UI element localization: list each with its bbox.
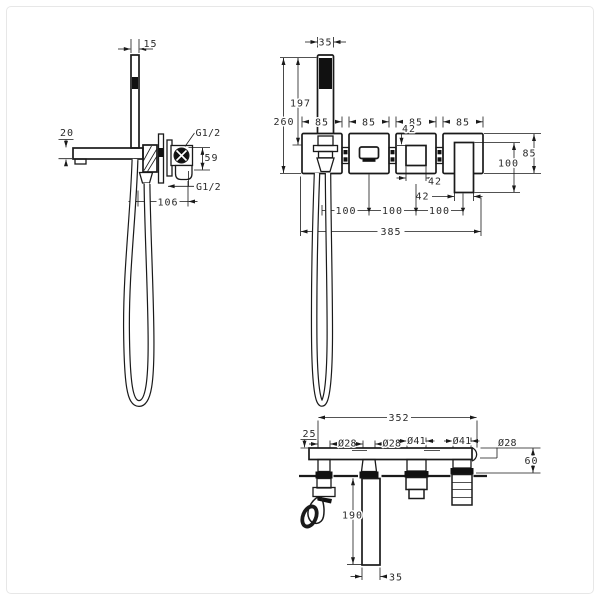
dim-spout-reach: 190 bbox=[342, 478, 363, 564]
dim-label: 35 bbox=[318, 38, 332, 49]
dim-label: 190 bbox=[342, 511, 363, 522]
valve-1-bottom bbox=[405, 460, 429, 499]
dim-plate1-width: 85 bbox=[302, 117, 342, 129]
valve-2-bottom bbox=[451, 460, 474, 506]
technical-drawing: 15 20 bbox=[0, 0, 600, 600]
dim-edge-offset: 25 bbox=[301, 429, 317, 448]
dim-hole3-diameter: Ø41 bbox=[398, 435, 435, 448]
dim-handshower-width: 35 bbox=[305, 37, 346, 49]
dim-label: Ø28 bbox=[498, 437, 517, 449]
dim-label: G1/2 bbox=[196, 128, 221, 139]
hand-shower-side bbox=[131, 55, 139, 148]
dim-label: Ø41 bbox=[407, 435, 426, 447]
shower-head-ring bbox=[300, 504, 320, 528]
dim-label: 197 bbox=[290, 99, 311, 110]
dim-label: 385 bbox=[380, 227, 401, 238]
inlet-connection-circle bbox=[174, 148, 189, 163]
plate-connector-1 bbox=[342, 148, 349, 164]
dim-label: G1/2 bbox=[196, 182, 221, 193]
dim-label: 25 bbox=[303, 429, 317, 440]
dim-label: 352 bbox=[388, 413, 409, 424]
dim-holder-bar-width: 15 bbox=[118, 39, 158, 53]
dim-plate4-width: 85 bbox=[443, 117, 483, 129]
dim-label: 85 bbox=[456, 118, 470, 129]
dim-label: 106 bbox=[157, 198, 178, 209]
plate-connector-2 bbox=[389, 148, 396, 164]
dim-hole5-diameter: Ø28 bbox=[480, 437, 517, 458]
plate-connector-3 bbox=[436, 148, 443, 164]
dim-spout-width: 35 bbox=[351, 568, 404, 584]
lever-handle-front bbox=[455, 143, 474, 193]
wall-bar-bottom bbox=[309, 448, 477, 461]
outlet-port-side bbox=[176, 166, 193, 180]
dim-label: 100 bbox=[335, 206, 356, 217]
dim-plate2-width: 85 bbox=[349, 117, 389, 129]
dim-wall-depth: 106 bbox=[129, 181, 198, 209]
dim-spout-height: 20 bbox=[59, 128, 75, 166]
shower-hook-bottom bbox=[300, 460, 335, 529]
dim-label: 42 bbox=[415, 192, 429, 203]
dim-label: 100 bbox=[498, 159, 519, 170]
dim-label: 20 bbox=[60, 128, 74, 139]
dim-label: 60 bbox=[524, 456, 538, 467]
hose-side bbox=[126, 159, 152, 404]
dim-handshower-length: 197 bbox=[290, 58, 314, 145]
mounting-plate-1 bbox=[302, 134, 342, 174]
dim-label: 100 bbox=[429, 206, 450, 217]
dim-label: 15 bbox=[144, 39, 158, 50]
mounting-plate-3 bbox=[396, 134, 436, 174]
dim-hole-spacings: 100 100 100 bbox=[322, 175, 465, 218]
dim-label: 260 bbox=[273, 117, 294, 128]
dim-label: Ø28 bbox=[338, 438, 357, 450]
mounting-plate-2 bbox=[349, 134, 389, 174]
dim-label: 85 bbox=[362, 118, 376, 129]
dim-plate-depth: 60 bbox=[476, 448, 541, 473]
dim-label: 100 bbox=[382, 206, 403, 217]
dim-label: Ø28 bbox=[383, 438, 402, 450]
dim-label: 85 bbox=[315, 118, 329, 129]
bottom-view: 190 35 Ø28 bbox=[299, 413, 541, 584]
side-view: 15 20 bbox=[59, 39, 221, 404]
dim-label: 42 bbox=[428, 177, 442, 188]
dim-top-connection: G1/2 bbox=[185, 128, 220, 147]
dim-label: 42 bbox=[402, 124, 416, 135]
dim-hole4-diameter: Ø41 bbox=[444, 435, 480, 448]
dim-label: 35 bbox=[389, 573, 403, 584]
front-view: 260 197 35 bbox=[273, 37, 541, 404]
dim-label: 85 bbox=[522, 149, 536, 160]
dim-label: 59 bbox=[205, 153, 219, 164]
dim-label: Ø41 bbox=[453, 435, 472, 447]
